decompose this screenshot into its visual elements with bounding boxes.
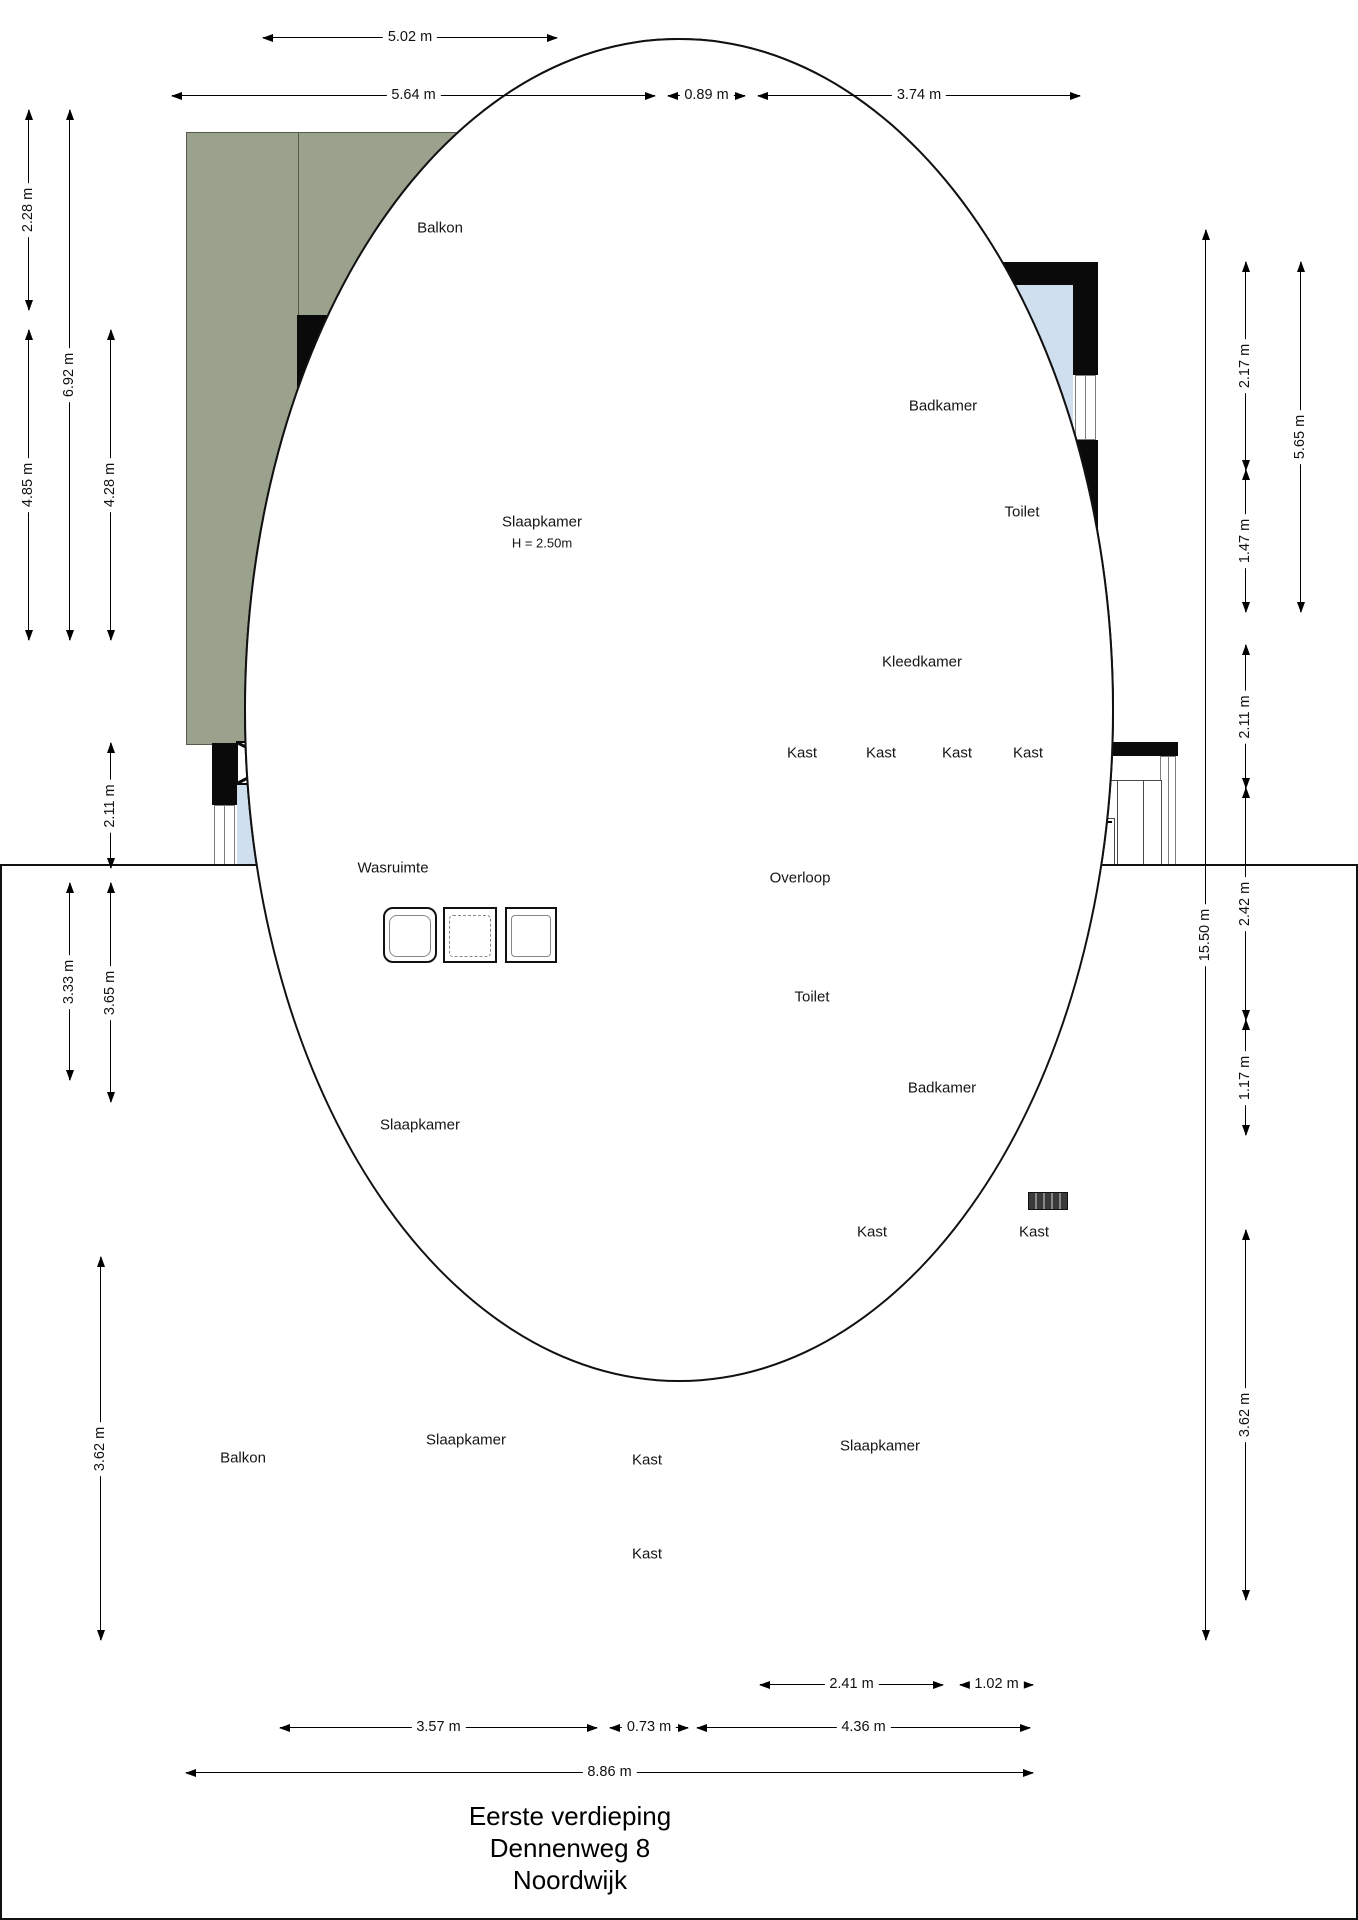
room-label-slaapkamer-height: H = 2.50m [512, 536, 572, 551]
room-label-badkamer-middle: Badkamer [908, 1080, 976, 1097]
dimension-left-5: 2.11 m [110, 743, 111, 868]
dimension-top-2: 5.64 m [172, 95, 655, 96]
dimension-left-4: 4.28 m [110, 330, 111, 640]
dimension-left-8: 3.62 m [100, 1257, 101, 1640]
dimension-left-2: 6.92 m [69, 110, 70, 640]
sink-icon [0, 0, 66, 44]
room-label-kast-2: Kast [866, 745, 896, 762]
dimension-left-3: 4.85 m [28, 330, 29, 640]
dimension-right-1: 2.17 m [1245, 262, 1246, 470]
dimension-bottom-3: 3.57 m [280, 1727, 597, 1728]
room-label-kast-4: Kast [1013, 745, 1043, 762]
dimension-right-6: 2.42 m [1245, 788, 1246, 1020]
dimension-right-8: 3.62 m [1245, 1230, 1246, 1600]
room-label-slaapkamer-br: Slaapkamer [840, 1438, 920, 1455]
dimension-bottom-2: 1.02 m [960, 1684, 1033, 1685]
plan-title: Eerste verdieping Dennenweg 8 Noordwijk [330, 1800, 810, 1896]
dimension-top-1: 5.02 m [263, 37, 557, 38]
room-label-wasruimte: Wasruimte [357, 860, 428, 877]
dimension-left-6: 3.33 m [69, 883, 70, 1080]
room-label-slaapkamer-top: Slaapkamer [502, 514, 582, 531]
room-label-kleedkamer: Kleedkamer [882, 654, 962, 671]
room-label-kast-right: Kast [1019, 1224, 1049, 1241]
room-label-overloop: Overloop [770, 870, 831, 887]
radiator-icon [1028, 1192, 1068, 1210]
title-street: Dennenweg 8 [330, 1832, 810, 1864]
dimension-right-5: 15.50 m [1205, 230, 1206, 1640]
dimension-bottom-6: 8.86 m [186, 1772, 1033, 1773]
room-label-kast-small-1: Kast [632, 1452, 662, 1469]
dimension-top-3: 0.89 m [668, 95, 745, 96]
dimension-top-4: 3.74 m [758, 95, 1080, 96]
dimension-bottom-4: 0.73 m [610, 1727, 688, 1728]
dimension-left-1: 2.28 m [28, 110, 29, 310]
room-label-kast-big: Kast [857, 1224, 887, 1241]
dimension-bottom-5: 4.36 m [697, 1727, 1030, 1728]
title-city: Noordwijk [330, 1864, 810, 1896]
room-label-kast-small-2: Kast [632, 1546, 662, 1563]
dimension-right-7: 1.17 m [1245, 1020, 1246, 1135]
dimension-bottom-1: 2.41 m [760, 1684, 943, 1685]
wall [212, 743, 237, 805]
floorplan-canvas: Balkon Slaapkamer H = 2.50m Badkamer Toi… [0, 0, 1358, 1920]
room-label-slaapkamer-bl: Slaapkamer [426, 1432, 506, 1449]
room-label-balkon-top: Balkon [417, 220, 463, 237]
wall [1073, 262, 1098, 375]
laundry-sink-icon [383, 907, 437, 963]
dimension-left-7: 3.65 m [110, 883, 111, 1102]
title-floor: Eerste verdieping [330, 1800, 810, 1832]
dimension-right-2: 1.47 m [1245, 470, 1246, 612]
room-label-slaapkamer-middle: Slaapkamer [380, 1117, 460, 1134]
sink-icon [0, 44, 66, 88]
laundry-basket-icon [443, 907, 497, 963]
dimension-right-4: 2.11 m [1245, 645, 1246, 788]
washing-machine-icon [505, 907, 557, 963]
room-label-kast-3: Kast [942, 745, 972, 762]
room-label-balkon-bottom: Balkon [220, 1450, 266, 1467]
room-label-badkamer-top: Badkamer [909, 398, 977, 415]
room-label-kast-1: Kast [787, 745, 817, 762]
dimension-right-3: 5.65 m [1300, 262, 1301, 612]
room-label-toilet-top: Toilet [1004, 504, 1039, 521]
room-label-toilet-middle: Toilet [794, 989, 829, 1006]
window [1075, 375, 1096, 440]
